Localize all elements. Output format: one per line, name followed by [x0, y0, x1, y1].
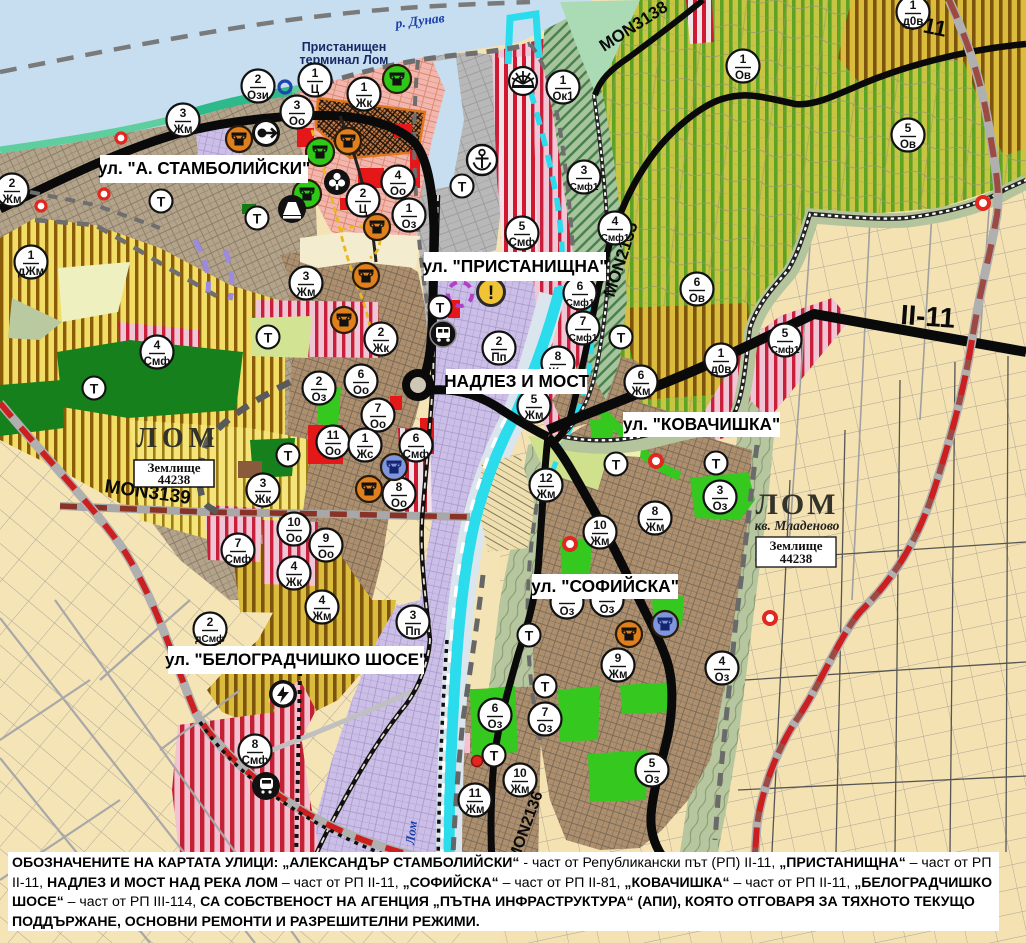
svg-text:9: 9 — [323, 531, 330, 545]
svg-text:ЛОМ: ЛОМ — [136, 423, 220, 454]
svg-text:Смф1: Смф1 — [569, 332, 598, 344]
svg-text:6: 6 — [413, 431, 420, 445]
svg-text:2: 2 — [9, 176, 16, 190]
svg-text:д0в: д0в — [711, 364, 732, 376]
svg-text:Жм: Жм — [536, 489, 556, 501]
svg-text:6: 6 — [638, 368, 645, 382]
svg-text:Оз: Оз — [538, 723, 553, 735]
svg-text:1: 1 — [740, 52, 747, 66]
svg-text:5: 5 — [649, 756, 656, 770]
svg-text:Смф: Смф — [225, 554, 252, 566]
svg-text:Пп: Пп — [491, 352, 506, 364]
svg-text:2: 2 — [255, 72, 262, 86]
svg-text:Оз: Оз — [312, 392, 327, 404]
svg-text:Жм: Жм — [590, 536, 610, 548]
svg-text:Оз: Оз — [488, 719, 503, 731]
svg-text:12: 12 — [539, 471, 553, 485]
svg-text:дЖм: дЖм — [18, 266, 44, 278]
svg-text:Смф1: Смф1 — [601, 232, 630, 244]
svg-text:4: 4 — [319, 593, 326, 607]
svg-text:Ц: Ц — [359, 204, 368, 216]
svg-text:2: 2 — [316, 374, 323, 388]
svg-text:44238: 44238 — [158, 472, 191, 487]
svg-text:9: 9 — [615, 651, 622, 665]
svg-text:7: 7 — [580, 314, 587, 328]
svg-text:Жк: Жк — [372, 343, 389, 355]
svg-text:1: 1 — [406, 201, 413, 215]
svg-text:Т: Т — [264, 330, 273, 346]
svg-text:Оо: Оо — [325, 446, 341, 458]
svg-text:1: 1 — [312, 66, 319, 80]
svg-text:Пп: Пп — [405, 626, 420, 638]
svg-text:Т: Т — [284, 448, 293, 464]
svg-text:4: 4 — [154, 338, 161, 352]
svg-text:11: 11 — [469, 786, 482, 800]
svg-text:Оо: Оо — [391, 498, 407, 510]
svg-text:3: 3 — [303, 269, 310, 283]
svg-text:6: 6 — [577, 279, 584, 293]
svg-text:Т: Т — [612, 457, 621, 473]
svg-text:Жм: Жм — [645, 522, 665, 534]
svg-text:Жм: Жм — [510, 784, 530, 796]
svg-text:Жм: Жм — [631, 386, 651, 398]
svg-text:Т: Т — [253, 211, 262, 227]
svg-text:11: 11 — [327, 428, 340, 442]
svg-text:Т: Т — [541, 679, 550, 695]
svg-text:Пристанищен: Пристанищен — [302, 40, 387, 54]
svg-text:7: 7 — [542, 705, 549, 719]
svg-text:1: 1 — [718, 346, 725, 360]
svg-text:3: 3 — [410, 608, 417, 622]
svg-text:Т: Т — [712, 456, 721, 472]
svg-text:Жм: Жм — [173, 124, 193, 136]
svg-text:4: 4 — [395, 168, 402, 182]
svg-text:Ов: Ов — [735, 70, 751, 82]
svg-text:Жк: Жк — [285, 577, 302, 589]
svg-text:Оз: Оз — [645, 774, 660, 786]
svg-text:Т: Т — [90, 381, 99, 397]
svg-text:Т: Т — [458, 179, 467, 195]
svg-text:4: 4 — [612, 214, 619, 228]
svg-text:Смф: Смф — [509, 237, 536, 249]
svg-text:2: 2 — [360, 186, 367, 200]
svg-text:Оо: Оо — [289, 116, 305, 128]
svg-text:1: 1 — [910, 0, 917, 12]
svg-text:1: 1 — [560, 73, 567, 87]
svg-text:8: 8 — [555, 349, 562, 363]
svg-text:44238: 44238 — [780, 551, 813, 566]
svg-text:1: 1 — [28, 248, 35, 262]
svg-text:3: 3 — [260, 476, 267, 490]
svg-text:Оз: Оз — [402, 219, 417, 231]
svg-text:Жк: Жк — [355, 98, 372, 110]
svg-text:Ози: Ози — [247, 90, 269, 102]
svg-text:Оо: Оо — [353, 385, 369, 397]
svg-text:5: 5 — [782, 326, 789, 340]
svg-text:ЛОМ: ЛОМ — [755, 488, 838, 521]
svg-text:Смф1: Смф1 — [570, 181, 599, 193]
svg-text:3: 3 — [294, 98, 301, 112]
svg-text:6: 6 — [358, 367, 365, 381]
svg-text:7: 7 — [375, 401, 382, 415]
svg-text:Смф: Смф — [144, 356, 171, 368]
svg-text:Лом: Лом — [402, 820, 420, 847]
svg-text:Оз: Оз — [600, 604, 615, 616]
svg-text:7: 7 — [235, 536, 242, 550]
svg-text:Ов: Ов — [900, 139, 916, 151]
svg-text:10: 10 — [513, 766, 527, 780]
svg-text:1: 1 — [362, 431, 369, 445]
svg-text:кв. Младеново: кв. Младеново — [755, 518, 840, 533]
svg-text:2: 2 — [207, 615, 214, 629]
svg-text:!: ! — [488, 283, 494, 304]
svg-text:Смф1: Смф1 — [566, 297, 595, 309]
svg-text:Смф1: Смф1 — [771, 344, 800, 356]
svg-text:2: 2 — [378, 325, 385, 339]
svg-text:4: 4 — [291, 559, 298, 573]
svg-text:3: 3 — [180, 106, 187, 120]
svg-text:Смф: Смф — [242, 755, 269, 767]
svg-text:3: 3 — [717, 483, 724, 497]
svg-text:2: 2 — [496, 334, 503, 348]
svg-text:II-11: II-11 — [900, 299, 957, 334]
svg-text:3: 3 — [581, 163, 588, 177]
svg-text:Т: Т — [525, 628, 534, 644]
svg-text:4: 4 — [719, 654, 726, 668]
svg-text:Оо: Оо — [390, 186, 406, 198]
svg-text:Жм: Жм — [2, 194, 22, 206]
svg-text:Оо: Оо — [318, 549, 334, 561]
svg-text:5: 5 — [531, 392, 538, 406]
svg-text:Жм: Жм — [465, 804, 485, 816]
svg-text:6: 6 — [492, 701, 499, 715]
svg-text:Ц: Ц — [311, 84, 320, 96]
svg-text:Жм: Жм — [312, 611, 332, 623]
svg-text:Т: Т — [617, 330, 626, 346]
svg-text:дСмф: дСмф — [195, 633, 225, 645]
svg-text:Смф: Смф — [403, 449, 430, 461]
svg-text:5: 5 — [905, 121, 912, 135]
svg-text:8: 8 — [396, 480, 403, 494]
svg-text:Жм: Жм — [524, 410, 544, 422]
svg-text:5: 5 — [519, 219, 526, 233]
svg-text:д0в: д0в — [903, 16, 924, 28]
svg-text:Жм: Жм — [608, 669, 628, 681]
svg-text:Жк: Жк — [254, 494, 271, 506]
svg-text:Т: Т — [490, 748, 499, 764]
svg-text:Т: Т — [157, 194, 166, 210]
svg-text:Оз: Оз — [713, 501, 728, 513]
svg-text:Т: Т — [436, 300, 445, 316]
svg-text:10: 10 — [593, 518, 607, 532]
svg-text:8: 8 — [652, 504, 659, 518]
svg-text:10: 10 — [287, 515, 301, 529]
svg-text:Оз: Оз — [560, 606, 575, 618]
svg-text:Жс: Жс — [356, 449, 374, 461]
svg-text:8: 8 — [252, 737, 259, 751]
svg-text:6: 6 — [694, 275, 701, 289]
svg-text:Оо: Оо — [286, 533, 302, 545]
svg-text:Ок1: Ок1 — [552, 91, 574, 103]
svg-text:Жм: Жм — [296, 287, 316, 299]
svg-text:1: 1 — [361, 80, 368, 94]
svg-text:Оз: Оз — [715, 672, 730, 684]
svg-text:Ов: Ов — [689, 293, 705, 305]
